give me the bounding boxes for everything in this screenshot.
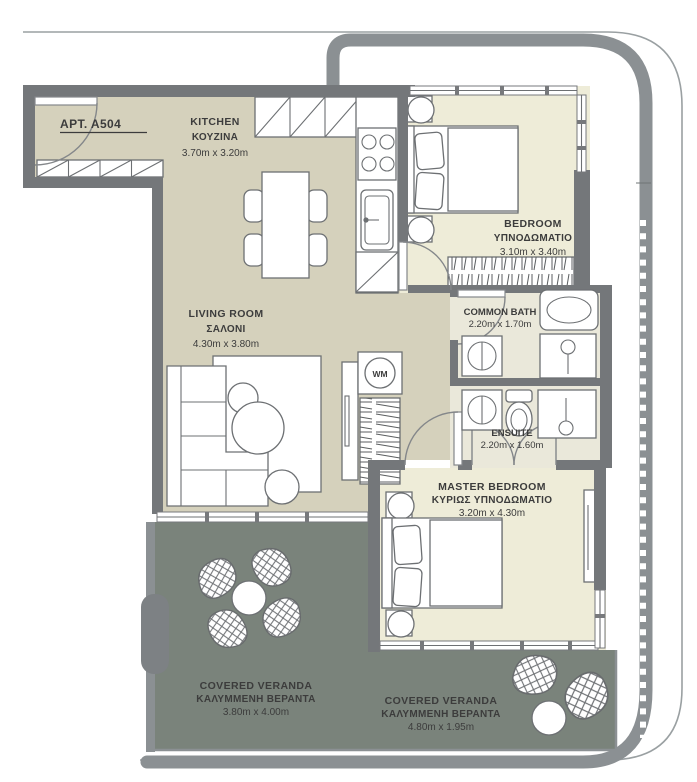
veranda-left-column: [141, 594, 169, 674]
svg-text:ΚΑΛΥΜΜΕΝΗ ΒΕΡΑΝΤΑ: ΚΑΛΥΜΜΕΝΗ ΒΕΡΑΝΤΑ: [196, 694, 315, 705]
pillow: [393, 567, 423, 607]
floor-plan-canvas: WM: [0, 0, 697, 782]
washing-machine-icon: WM: [365, 358, 395, 388]
svg-text:4.30m x 3.80m: 4.30m x 3.80m: [193, 339, 259, 350]
svg-text:COVERED VERANDA: COVERED VERANDA: [385, 695, 498, 707]
kitchen-counter: [356, 97, 398, 293]
svg-text:3.10m x 3.40m: 3.10m x 3.40m: [500, 247, 566, 258]
window-bedroom-top: [410, 86, 577, 95]
bed: [405, 126, 518, 213]
wall-master-left: [368, 468, 380, 652]
svg-text:ΣΑΛΟΝΙ: ΣΑΛΟΝΙ: [206, 324, 245, 335]
svg-text:ΥΠΝΟΔΩΜΑΤΙΟ: ΥΠΝΟΔΩΜΑΤΙΟ: [494, 233, 573, 244]
common-bath-label: COMMON BATH 2.20m x 1.70m: [464, 307, 537, 330]
bathtub-icon: [540, 290, 598, 330]
veranda-table: [532, 701, 566, 735]
veranda-table: [232, 581, 266, 615]
svg-text:COVERED VERANDA: COVERED VERANDA: [200, 680, 313, 692]
side-table: [265, 470, 299, 504]
svg-text:3.20m x 4.30m: 3.20m x 4.30m: [459, 508, 525, 519]
bed: [382, 518, 502, 608]
apartment-number: APT. A504: [60, 117, 121, 131]
cabinet-cell: [356, 252, 398, 292]
pillow: [415, 172, 444, 210]
shower-icon: [540, 334, 596, 378]
tv-unit: [342, 362, 358, 480]
svg-text:ΚΟΥΖΙΝΑ: ΚΟΥΖΙΝΑ: [192, 132, 238, 143]
svg-text:MASTER BEDROOM: MASTER BEDROOM: [438, 481, 546, 493]
svg-text:3.70m x 3.20m: 3.70m x 3.20m: [182, 148, 248, 159]
nightstand-lamp: [388, 611, 414, 637]
dining-chair: [244, 190, 264, 222]
floor-plan: WM: [0, 0, 697, 782]
window-bedroom-right: [577, 95, 586, 172]
wall-bath-right: [600, 285, 612, 468]
blanket: [430, 520, 502, 606]
washing-machine-label: WM: [372, 369, 387, 379]
kitchen-label: KITCHEN ΚΟΥΖΙΝΑ 3.70m x 3.20m: [182, 116, 248, 159]
dining-table: [262, 172, 309, 278]
svg-text:KITCHEN: KITCHEN: [190, 116, 239, 128]
svg-text:ΚΥΡΙΩΣ ΥΠΝΟΔΩΜΑΤΙΟ: ΚΥΡΙΩΣ ΥΠΝΟΔΩΜΑΤΙΟ: [432, 495, 553, 506]
wall-kitchen-bedroom: [398, 93, 408, 243]
blanket: [448, 128, 518, 211]
wall-bedroom-right: [574, 170, 590, 293]
wall-top: [23, 85, 415, 97]
svg-text:2.20m x 1.70m: 2.20m x 1.70m: [469, 319, 532, 330]
shower-icon: [538, 390, 596, 438]
washbasin-icon: [462, 336, 502, 376]
pillow: [414, 132, 444, 170]
svg-text:BEDROOM: BEDROOM: [504, 218, 562, 230]
nightstand-lamp: [408, 217, 434, 243]
svg-text:4.80m x 1.95m: 4.80m x 1.95m: [408, 722, 474, 733]
bedroom-label: BEDROOM ΥΠΝΟΔΩΜΑΤΙΟ 3.10m x 3.40m: [494, 218, 573, 258]
bedroom-wardrobe: [448, 257, 574, 288]
nightstand-lamp: [408, 97, 434, 123]
stove-icon: [358, 128, 396, 180]
svg-text:ΚΑΛΥΜΜΕΝΗ ΒΕΡΑΝΤΑ: ΚΑΛΥΜΜΕΝΗ ΒΕΡΑΝΤΑ: [381, 709, 500, 720]
window-master-bottom: [380, 641, 598, 650]
coffee-table-large: [232, 402, 284, 454]
svg-text:ENSUITE: ENSUITE: [491, 428, 532, 439]
closet-row-left: [37, 160, 163, 177]
window-master-right: [595, 590, 605, 648]
sink-icon: [361, 190, 393, 250]
nightstand-lamp: [388, 493, 414, 519]
svg-text:2.20m x 1.60m: 2.20m x 1.60m: [481, 440, 544, 451]
dining-chair: [307, 234, 327, 266]
wall-entry-bottom: [23, 177, 163, 188]
washbasin-icon: [462, 390, 502, 430]
svg-text:LIVING ROOM: LIVING ROOM: [189, 308, 264, 320]
wall-left-upper: [23, 85, 35, 188]
dining-chair: [307, 190, 327, 222]
wall-master-right: [594, 468, 606, 590]
svg-text:3.80m x 4.00m: 3.80m x 4.00m: [223, 707, 289, 718]
dining-chair: [244, 234, 264, 266]
window-living-veranda: [157, 512, 368, 522]
wall-bath-divider: [450, 378, 600, 386]
headboard: [382, 518, 392, 608]
wall-left-living: [152, 188, 163, 514]
pillow: [393, 525, 423, 565]
svg-text:COMMON BATH: COMMON BATH: [464, 307, 537, 318]
